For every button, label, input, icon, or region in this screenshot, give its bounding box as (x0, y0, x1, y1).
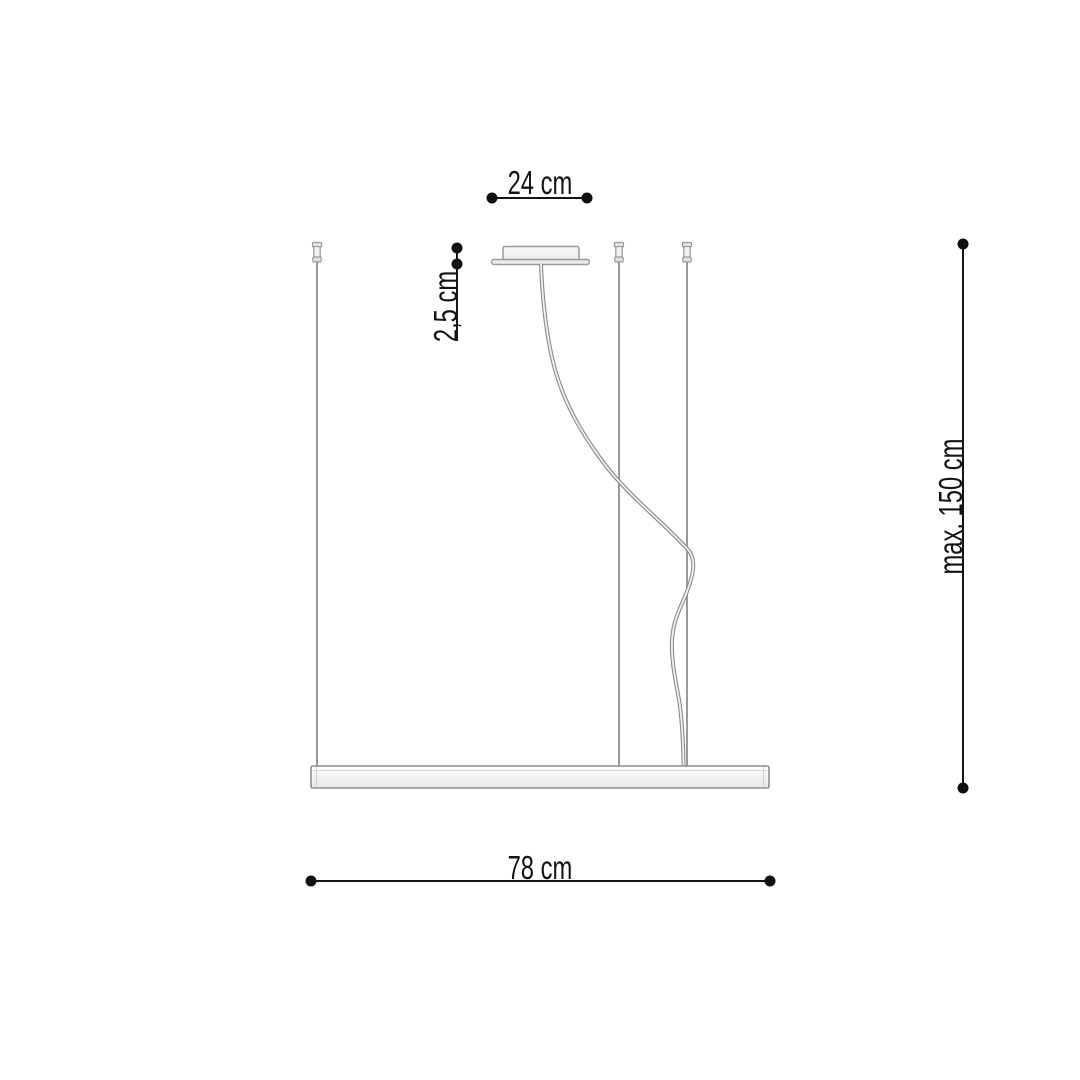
dim-line-suspension-height (962, 244, 964, 788)
wire-connector-middle (615, 243, 624, 263)
canopy-flange (492, 260, 590, 265)
dim-dot (958, 783, 969, 794)
dim-line-fixture-width (311, 880, 770, 882)
dim-dot (306, 876, 317, 887)
dim-dot (958, 239, 969, 250)
dim-dot (765, 876, 776, 887)
dim-dot (451, 243, 462, 254)
wire-connector-left (313, 243, 322, 263)
power-cable (541, 264, 693, 767)
dim-dot (487, 192, 498, 203)
lamp-illustration (0, 0, 1080, 1080)
lamp-bar (311, 766, 769, 788)
wire-connector-right (683, 243, 692, 263)
dim-dot (582, 192, 593, 203)
dimension-diagram: 24 cm 2,5 cm max. 150 cm 78 cm (0, 0, 1080, 1080)
dim-dot (451, 259, 462, 270)
dim-line-canopy-width (492, 197, 587, 199)
